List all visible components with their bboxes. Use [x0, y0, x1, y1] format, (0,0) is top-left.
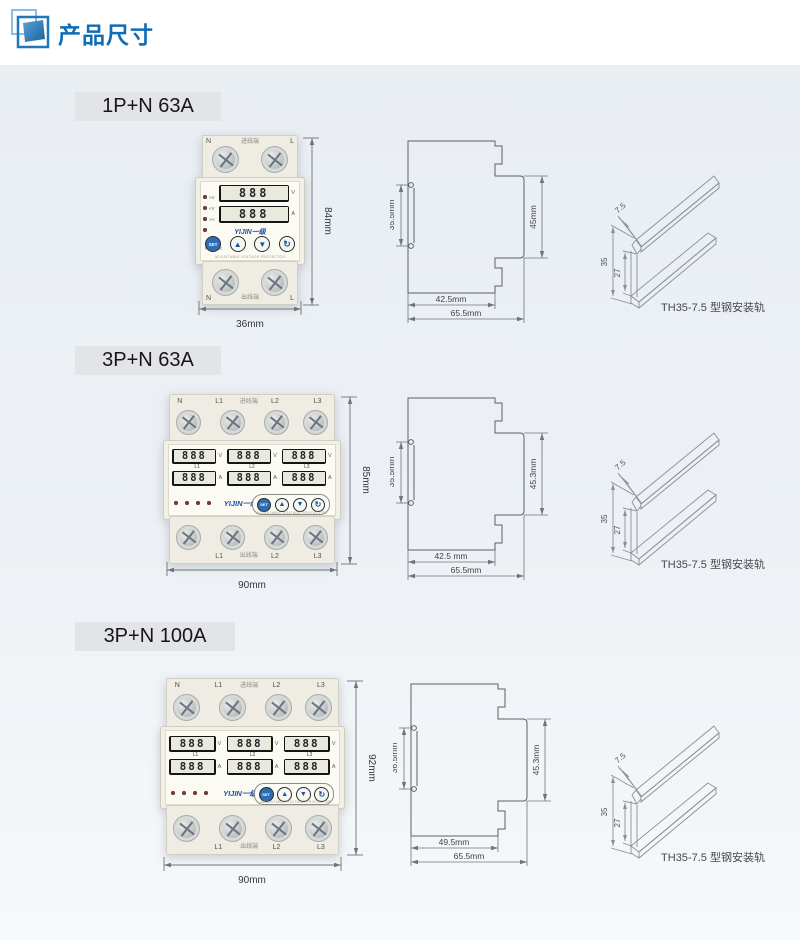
fineprint-text: ADJUSTABLE VOLTAGE PROTECTOR	[256, 512, 327, 516]
terminal-label: L2	[271, 553, 279, 560]
outlet-label: 出线端	[240, 553, 258, 559]
terminal-label: L3	[314, 398, 322, 405]
svg-text:36.5mm: 36.5mm	[393, 743, 399, 774]
set-button: SET	[205, 236, 221, 252]
screw-terminal	[303, 410, 328, 435]
terminal-label: L2	[273, 844, 281, 851]
display-digits: 888	[174, 450, 215, 462]
unit-label: A	[275, 764, 279, 770]
display-digits: 888	[229, 450, 270, 462]
screw-terminal	[173, 694, 200, 721]
down-button: ▼	[293, 498, 307, 512]
svg-text:42.5 mm: 42.5 mm	[434, 551, 467, 561]
screw-terminal	[219, 815, 246, 842]
top-terminal-block: N L1 进线端 L2 L3	[169, 394, 335, 442]
screw-terminal	[264, 525, 289, 550]
svg-text:7.5: 7.5	[613, 751, 628, 765]
unit-label: A	[218, 475, 222, 481]
display-digits: 888	[171, 737, 214, 750]
top-terminal-block: N 进线端 L	[202, 135, 298, 179]
unit-label: V	[291, 190, 295, 196]
outlet-label: 出线端	[240, 844, 258, 850]
svg-text:TH35-7.5 型钢安装轨: TH35-7.5 型钢安装轨	[661, 850, 765, 864]
front-panel: 888V L1 888A 888V L2 888A 888V L3 888A Y…	[165, 730, 340, 805]
unit-label: V	[332, 741, 336, 747]
display-digits: 888	[221, 186, 288, 200]
led-indicator	[185, 501, 189, 505]
terminal-label: L3	[317, 682, 325, 689]
height-dimension: 84mm	[303, 133, 337, 311]
terminal-label: N	[175, 682, 180, 689]
side-view-drawing: 35.5mm 45.3mm 42.5 mm 65.5mm	[390, 390, 568, 592]
terminal-label: L1	[215, 398, 223, 405]
terminal-label: N	[177, 398, 182, 405]
device-body: 888V L1 888A 888V L2 888A 888V L3 888A Y…	[163, 440, 341, 520]
screw-terminal	[303, 525, 328, 550]
screw-terminal	[220, 410, 245, 435]
led-row	[174, 501, 211, 505]
display-phase3: 888V L3 888A	[284, 735, 336, 775]
screw-terminal	[212, 146, 239, 173]
screw-terminal	[265, 815, 292, 842]
page-title: 产品尺寸	[58, 16, 154, 50]
svg-text:35: 35	[600, 807, 609, 816]
display-digits: 888	[283, 472, 324, 484]
svg-text:90mm: 90mm	[238, 580, 266, 591]
led-column: >V <V >A POWER	[203, 186, 219, 230]
led-label: >A	[209, 217, 215, 222]
display-stack: 888 V 888 A	[219, 184, 295, 223]
screw-terminal	[212, 269, 239, 296]
display-digits: 888	[221, 207, 288, 221]
svg-text:85mm: 85mm	[360, 466, 371, 494]
voltage-display: 888 V	[219, 184, 295, 202]
svg-text:27: 27	[613, 268, 622, 277]
display-digits: 888	[285, 737, 328, 750]
up-button: ▲	[275, 498, 289, 512]
display-digits: 888	[228, 737, 271, 750]
device-front-3pn100a: N L1 进线端 L2 L3 888V L1 888A 888V L2 888A…	[160, 678, 345, 855]
svg-text:35.5mm: 35.5mm	[390, 457, 396, 488]
display-digits: 888	[283, 450, 324, 462]
height-dimension: 85mm	[341, 392, 375, 570]
display-digits: 888	[174, 472, 215, 484]
up-button: ▲	[230, 236, 246, 252]
title-squares-icon	[10, 8, 52, 52]
side-view-drawing: 36.5mm 45.3mm 49.5mm 65.5mm	[393, 676, 571, 878]
terminal-label: L1	[214, 844, 222, 851]
svg-text:42.5mm: 42.5mm	[436, 294, 467, 304]
front-panel: 888V L1 888A 888V L2 888A 888V L3 888A Y…	[168, 444, 336, 516]
fineprint-text: ADJUSTABLE VOLTAGE PROTECTOR	[201, 256, 299, 260]
device-front-3pn63a: N L1 进线端 L2 L3 888V L1 888A 888V L2 888A…	[163, 394, 341, 564]
terminal-label: L	[290, 138, 294, 145]
unit-label: V	[218, 741, 222, 747]
led-indicator	[204, 791, 208, 795]
svg-text:27: 27	[613, 818, 622, 827]
display-phase1: 888V L1 888A	[172, 448, 222, 486]
side-view-drawing: 35.5mm 45mm 42.5mm 65.5mm	[390, 133, 568, 335]
screw-terminal	[265, 694, 292, 721]
current-display: 888 A	[219, 205, 295, 223]
din-rail-drawing: 35 27 7.5 TH35-7.5 型钢安装轨	[598, 405, 800, 573]
device-front-1pn63a: N 进线端 L >V <V >A POWER 888 V 888 A	[195, 135, 305, 305]
screw-terminal	[176, 410, 201, 435]
unit-label: A	[328, 475, 332, 481]
screw-terminal	[305, 694, 332, 721]
down-button: ▼	[254, 236, 270, 252]
width-dimension: 36mm	[193, 301, 307, 331]
svg-text:45.3mm: 45.3mm	[528, 459, 538, 490]
svg-text:35: 35	[600, 257, 609, 266]
svg-text:35.5mm: 35.5mm	[390, 200, 396, 231]
display-phase2: 888V L2 888A	[227, 735, 279, 775]
terminal-label: L1	[214, 682, 222, 689]
section-label-3pn63a: 3P+N 63A	[75, 346, 221, 375]
display-digits: 888	[228, 760, 271, 773]
terminal-label: N	[206, 138, 211, 145]
section-label-3pn100a: 3P+N 100A	[75, 622, 235, 651]
unit-label: A	[332, 764, 336, 770]
svg-text:65.5mm: 65.5mm	[451, 565, 482, 575]
led-indicator	[174, 501, 178, 505]
svg-text:45mm: 45mm	[528, 205, 538, 229]
svg-text:84mm: 84mm	[322, 207, 333, 235]
button-row: SET ▲ ▼ ↻	[205, 236, 295, 252]
top-terminal-block: N L1 进线端 L2 L3	[166, 678, 339, 728]
svg-text:65.5mm: 65.5mm	[454, 851, 485, 861]
led-indicator	[207, 501, 211, 505]
bottom-terminal-block: N 出线端 L	[202, 261, 298, 305]
led-indicator	[171, 791, 175, 795]
inlet-label: 进线端	[240, 399, 258, 405]
led-indicator	[193, 791, 197, 795]
fineprint-text: ADJUSTABLE VOLTAGE PROTECTOR	[260, 801, 331, 805]
width-dimension: 90mm	[161, 562, 343, 592]
din-rail-drawing: 35 27 7.5 TH35-7.5 型钢安装轨	[598, 698, 800, 866]
svg-text:92mm: 92mm	[366, 754, 377, 782]
din-rail-drawing: 35 27 7.5 TH35-7.5 型钢安装轨	[598, 148, 800, 316]
svg-text:36mm: 36mm	[236, 319, 264, 330]
screw-terminal	[176, 525, 201, 550]
width-dimension: 90mm	[158, 857, 347, 887]
svg-text:7.5: 7.5	[613, 458, 628, 472]
unit-label: V	[218, 453, 222, 459]
led-row	[171, 791, 208, 795]
svg-text:TH35-7.5 型钢安装轨: TH35-7.5 型钢安装轨	[661, 300, 765, 314]
led-indicator	[182, 791, 186, 795]
svg-text:65.5mm: 65.5mm	[451, 308, 482, 318]
device-body: 888V L1 888A 888V L2 888A 888V L3 888A Y…	[160, 726, 345, 809]
led-indicator	[196, 501, 200, 505]
screw-terminal	[261, 146, 288, 173]
screw-terminal	[173, 815, 200, 842]
display-digits: 888	[171, 760, 214, 773]
unit-label: A	[291, 211, 295, 217]
section-label-1pn63a: 1P+N 63A	[75, 92, 221, 121]
device-body: >V <V >A POWER 888 V 888 A YIJIN一级 SET ▲…	[195, 177, 305, 265]
brand-logo: YIJIN一级	[223, 788, 257, 799]
svg-text:TH35-7.5 型钢安装轨: TH35-7.5 型钢安装轨	[661, 557, 765, 571]
height-dimension: 92mm	[347, 676, 381, 861]
terminal-label: L2	[271, 398, 279, 405]
terminal-label: L1	[215, 553, 223, 560]
reset-button: ↻	[311, 498, 325, 512]
bottom-terminal-block: L1 出线端 L2 L3	[169, 516, 335, 564]
svg-text:27: 27	[613, 525, 622, 534]
unit-label: V	[273, 453, 277, 459]
unit-label: V	[328, 453, 332, 459]
svg-text:90mm: 90mm	[238, 875, 266, 886]
inlet-label: 进线端	[240, 683, 258, 689]
svg-text:7.5: 7.5	[613, 201, 628, 215]
screw-terminal	[219, 694, 246, 721]
svg-text:49.5mm: 49.5mm	[439, 837, 470, 847]
svg-text:45.3mm: 45.3mm	[531, 745, 541, 776]
unit-label: V	[275, 741, 279, 747]
unit-label: A	[218, 764, 222, 770]
display-phase2: 888V L2 888A	[227, 448, 277, 486]
svg-text:35: 35	[600, 514, 609, 523]
display-phase1: 888V L1 888A	[169, 735, 221, 775]
reset-button: ↻	[279, 236, 295, 252]
screw-terminal	[220, 525, 245, 550]
terminal-label: L3	[314, 553, 322, 560]
page-header: 产品尺寸	[0, 0, 800, 65]
screw-terminal	[264, 410, 289, 435]
set-button: SET	[257, 498, 271, 512]
terminal-label: L3	[317, 844, 325, 851]
front-panel: >V <V >A POWER 888 V 888 A YIJIN一级 SET ▲…	[200, 181, 300, 261]
bottom-terminal-block: L1 出线端 L2 L3	[166, 805, 339, 855]
display-digits: 888	[285, 760, 328, 773]
unit-label: A	[273, 475, 277, 481]
display-phase3: 888V L3 888A	[282, 448, 332, 486]
screw-terminal	[305, 815, 332, 842]
screw-terminal	[261, 269, 288, 296]
inlet-label: 进线端	[241, 139, 259, 145]
display-digits: 888	[229, 472, 270, 484]
terminal-label: L2	[273, 682, 281, 689]
